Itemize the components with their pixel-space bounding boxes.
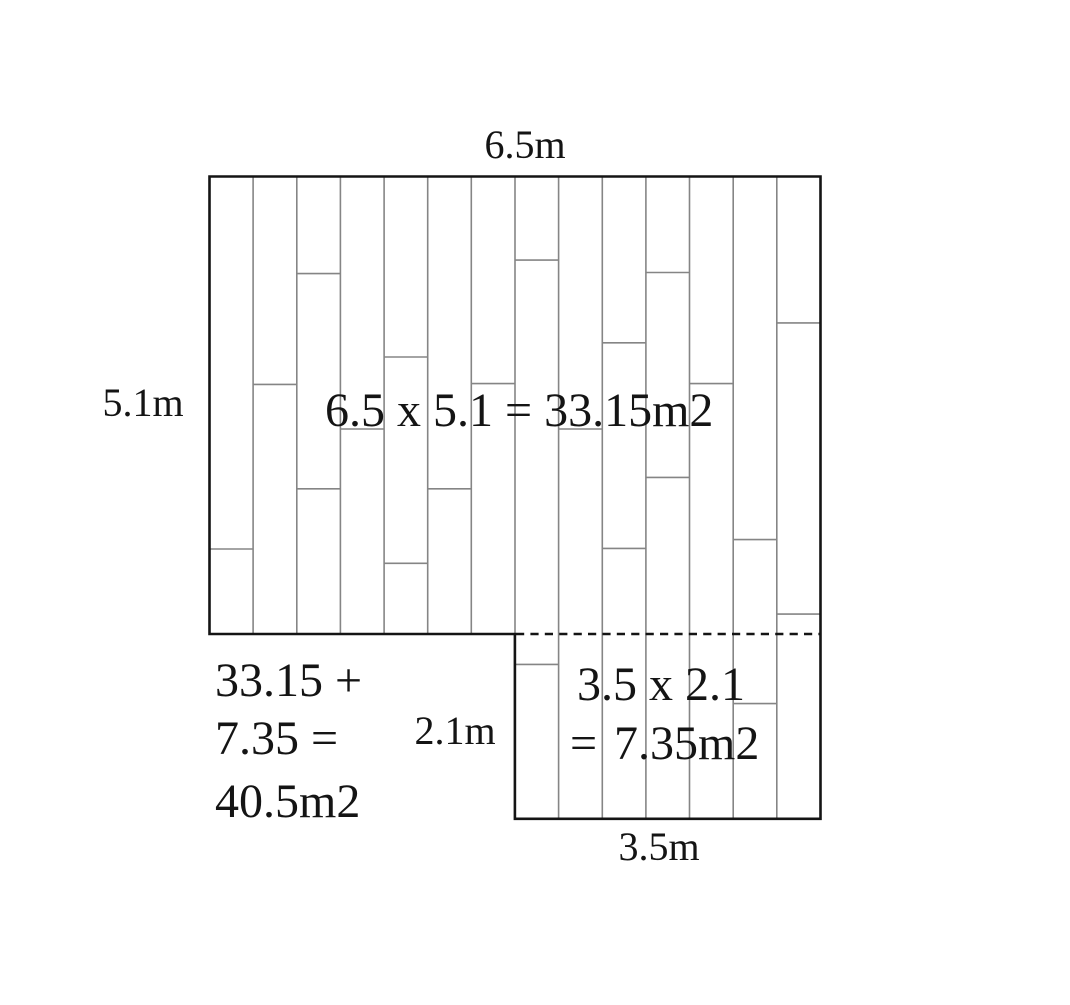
svg-text:3.5m: 3.5m bbox=[618, 824, 699, 869]
svg-text:7.35 =: 7.35 = bbox=[215, 712, 338, 765]
svg-text:6.5 x 5.1 = 33.15m2: 6.5 x 5.1 = 33.15m2 bbox=[325, 384, 713, 437]
svg-text:5.1m: 5.1m bbox=[102, 380, 183, 425]
svg-text:3.5 x 2.1: 3.5 x 2.1 bbox=[577, 658, 745, 711]
svg-text:33.15 +: 33.15 + bbox=[215, 654, 362, 707]
svg-text:40.5m2: 40.5m2 bbox=[215, 775, 360, 828]
svg-text:6.5m: 6.5m bbox=[484, 122, 565, 167]
svg-text:7.35m2: 7.35m2 bbox=[614, 717, 759, 770]
svg-text:2.1m: 2.1m bbox=[414, 708, 495, 753]
svg-text:=: = bbox=[570, 717, 597, 770]
